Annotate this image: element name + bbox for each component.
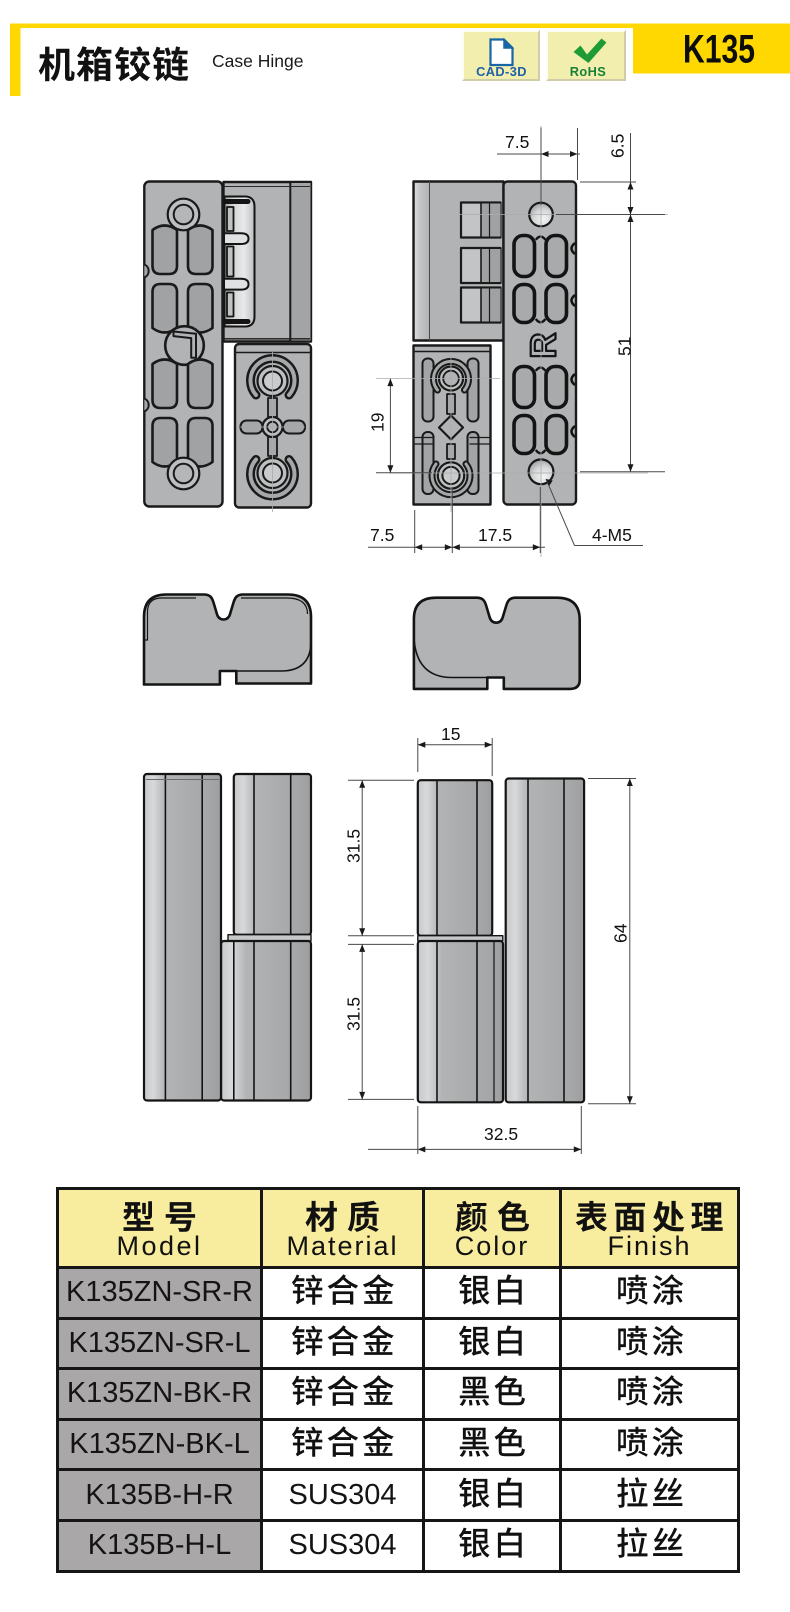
- svg-text:7.5: 7.5: [370, 525, 394, 545]
- svg-text:15: 15: [441, 724, 460, 744]
- svg-text:32.5: 32.5: [484, 1124, 518, 1144]
- svg-text:7.5: 7.5: [505, 132, 529, 152]
- svg-text:17.5: 17.5: [478, 525, 512, 545]
- svg-text:4-M5: 4-M5: [592, 525, 632, 545]
